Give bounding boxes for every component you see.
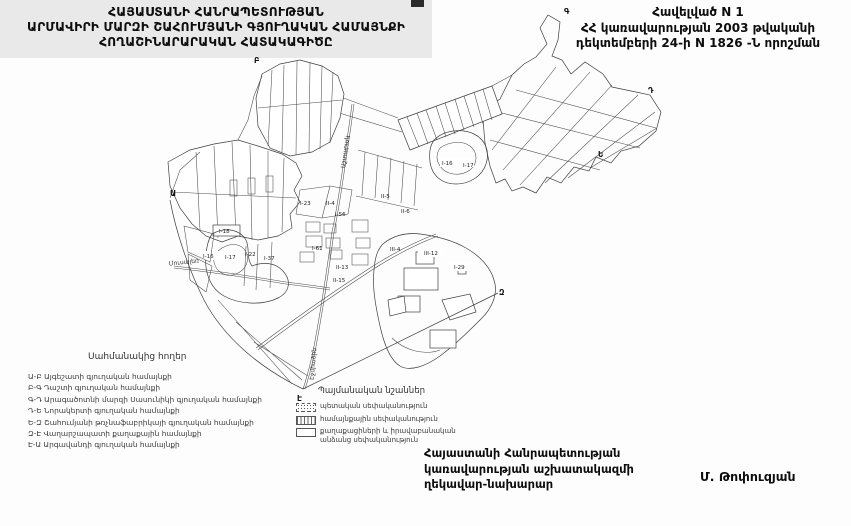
road-label: Էջմիածին [309, 347, 319, 380]
symbol-item: պետական սեփականություն [296, 402, 486, 412]
adjacent-land-item: Ե-Զ Շահումյանի թռչնաֆաբրիկայի գյուղական … [28, 417, 288, 428]
parcel-label: I-17 [225, 255, 236, 261]
adjacent-land-item: Գ-Դ Արագածոտնի մարզի Սասունիկի գյուղական… [28, 394, 288, 405]
parcel-label: III-12 [424, 251, 438, 257]
parcel-label: I-23 [300, 201, 311, 207]
parcel-label: I-22 [245, 252, 256, 258]
road-label: Մուսալեռ [168, 257, 199, 267]
parcel-label: I-18 [219, 229, 230, 235]
north-parcel-column [256, 60, 344, 156]
parcel-label: I-61 [312, 246, 323, 252]
parcel-label: II-6 [401, 209, 410, 215]
adjacent-lands-legend: Սահմանակից հողեր Ա-Բ Այգեշատի գյուղական … [28, 352, 288, 451]
parcel-label: II-4 [326, 201, 335, 207]
strip-parcels-band [336, 75, 512, 150]
symbol-label: քաղաքացիների և իրավաբանական անձանց սեփակ… [320, 427, 470, 444]
adjacent-land-item: Է-Ա Արգավանդի գյուղական համայնքի [28, 439, 288, 450]
symbols-legend-title: Պայմանական նշաններ [318, 386, 486, 396]
boundary-letter: Ա [170, 189, 176, 198]
signatory-line-2: կառավարության աշխատակազմի [424, 462, 704, 478]
parcel-label: I-17 [463, 163, 474, 169]
symbols-legend: Պայմանական նշաններ պետական սեփականությու… [296, 386, 486, 447]
adjacent-land-item: Զ-Է Վաղարշապատի քաղաքային համայնքի [28, 428, 288, 439]
parcel-label: I-29 [454, 265, 465, 271]
scanned-cadastral-plan-page: { "colors": {"paper":"#fdfdfd","ink":"#0… [0, 0, 851, 526]
signatory-line-1: Հայաստանի Հանրապետության [424, 446, 704, 462]
boundary-letter: Գ [564, 7, 570, 16]
parcel-label: II-13 [336, 265, 349, 271]
adjacent-land-item: Բ-Գ Դաշտի գյուղական համայնքի [28, 382, 288, 393]
road-label: Աշտարակ [340, 135, 351, 169]
community-property-swatch [296, 416, 316, 425]
parcel-label: III-4 [390, 247, 401, 253]
parcel-label: I-37 [264, 256, 275, 262]
boundary-letter: Դ [648, 86, 654, 95]
hatched-field-block-ne [483, 15, 661, 193]
signatory-name: Մ. Թոփուզյան [700, 469, 796, 484]
boundary-letter: Ե [598, 150, 603, 159]
adjacent-legend-title: Սահմանակից հողեր [88, 352, 288, 362]
private-property-swatch [296, 428, 316, 437]
boundary-letter: Բ [254, 56, 259, 65]
signatory-title: Հայաստանի Հանրապետության կառավարության ա… [424, 446, 704, 493]
adjacent-land-item: Ա-Բ Այգեշատի գյուղական համայնքի [28, 371, 288, 382]
symbol-item: համայնքային սեփականություն [296, 415, 486, 425]
parcel-label: I-16 [203, 254, 214, 260]
parcel-label: II-15 [333, 278, 346, 284]
adjacent-land-item: Դ-Ե Նորակերտի գյուղական համայնքի [28, 405, 288, 416]
symbol-item: քաղաքացիների և իրավաբանական անձանց սեփակ… [296, 427, 486, 444]
state-property-swatch [296, 403, 316, 412]
symbol-label: պետական սեփականություն [320, 402, 427, 411]
symbol-label: համայնքային սեփականություն [320, 415, 438, 424]
parcel-label: I-56 [335, 212, 346, 218]
parcel-label: II-5 [381, 194, 390, 200]
boundary-letter: Զ [499, 288, 505, 297]
parcel-label: I-16 [442, 161, 453, 167]
signatory-line-3: ղեկավար-նախարար [424, 477, 704, 493]
